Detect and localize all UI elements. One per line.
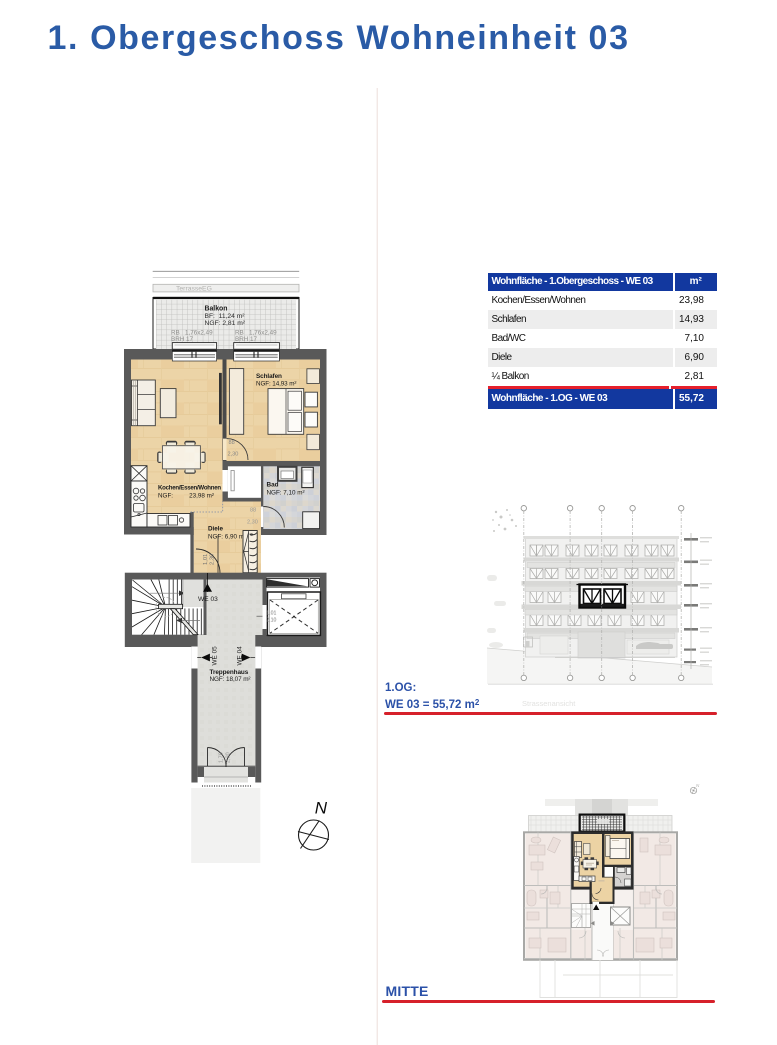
svg-text:N: N: [315, 799, 328, 818]
svg-text:NGF:: NGF:: [158, 492, 173, 499]
svg-text:Bad: Bad: [267, 482, 279, 489]
svg-text:2,10: 2,10: [266, 618, 276, 624]
svg-text:Kochen/Essen/Wohnen: Kochen/Essen/Wohnen: [158, 485, 221, 492]
svg-text:23,98 m²: 23,98 m²: [189, 492, 214, 499]
svg-text:Strassenansicht: Strassenansicht: [522, 699, 576, 708]
svg-text:BF: 11,24 m²: BF: 11,24 m²: [205, 313, 246, 320]
svg-text:1,76: 1,76: [219, 752, 225, 763]
svg-text:2,30: 2,30: [247, 520, 258, 526]
svg-text:WE 03: WE 03: [198, 596, 218, 603]
svg-text:Schlafen: Schlafen: [256, 373, 282, 380]
svg-text:2,30: 2,30: [226, 752, 232, 763]
svg-text:WE 05: WE 05: [212, 646, 219, 666]
svg-text:NGF: 14,93 m²: NGF: 14,93 m²: [256, 381, 296, 388]
svg-text:Treppenhaus: Treppenhaus: [210, 669, 249, 676]
svg-text:NGF: 18,07 m²: NGF: 18,07 m²: [210, 676, 251, 683]
svg-text:N: N: [696, 783, 700, 788]
svg-text:1,01: 1,01: [203, 554, 209, 565]
svg-text:88: 88: [250, 508, 256, 514]
svg-text:2,30: 2,30: [210, 554, 216, 565]
svg-text:NGF: 6,90 m²: NGF: 6,90 m²: [208, 533, 246, 540]
svg-text:Diele: Diele: [208, 526, 224, 533]
svg-text:88: 88: [229, 440, 235, 446]
svg-text:1,01: 1,01: [266, 611, 276, 617]
svg-text:2,30: 2,30: [228, 452, 239, 458]
svg-text:TerrasseEG: TerrasseEG: [176, 286, 212, 293]
svg-text:NGF: 7,10 m²: NGF: 7,10 m²: [267, 489, 305, 496]
svg-text:WE 04: WE 04: [236, 646, 243, 666]
svg-text:Balkon: Balkon: [205, 306, 228, 313]
svg-text:NGF: 2,81 m²: NGF: 2,81 m²: [205, 320, 246, 327]
